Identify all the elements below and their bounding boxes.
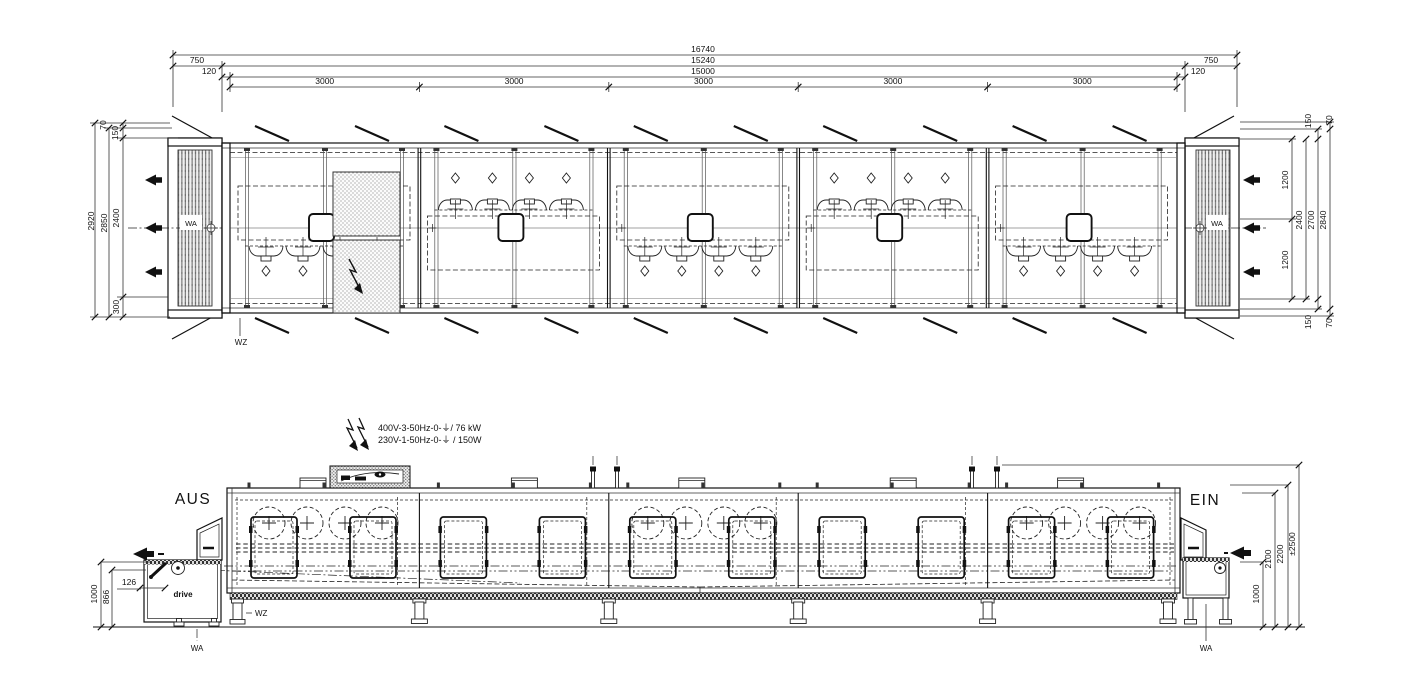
dim-module-5: 3000 — [1073, 76, 1092, 86]
door-hinge — [485, 526, 489, 533]
dim-right-120: 120 — [1191, 66, 1205, 76]
roof-box — [1058, 478, 1084, 488]
exit-label: AUS — [175, 491, 211, 508]
plan-electrical-section — [333, 172, 400, 313]
roof-box — [300, 478, 326, 488]
dim-15240: 15240 — [691, 55, 715, 65]
door-hinge — [1007, 526, 1011, 533]
entry-hood — [1181, 518, 1206, 560]
door-hinge — [537, 526, 541, 533]
door-hinge — [485, 560, 489, 567]
flow-arrow-entry — [1230, 547, 1251, 560]
machine-foot — [980, 599, 996, 624]
machine-foot — [601, 599, 617, 624]
dim-left-300: 300 — [111, 300, 121, 314]
dim-total-length: 16740 — [691, 44, 715, 54]
flow-arrow-exit — [133, 548, 154, 561]
drive-label: drive — [173, 590, 193, 599]
roof-box — [511, 478, 537, 488]
airflow-arrow-left — [145, 175, 162, 186]
end-cap-left: WA — [128, 138, 224, 318]
door-hinge — [348, 526, 352, 533]
dim-left-750: 750 — [190, 55, 204, 65]
machine-foot — [411, 599, 427, 624]
door-hinge — [628, 560, 632, 567]
pump-box — [1067, 214, 1092, 241]
elevation-view: 400V-3-50Hz-0-⏚/ 76 kW 230V-1-50Hz-0-⏚ /… — [89, 418, 1305, 653]
wa-callouts-elevation: WA WA — [191, 604, 1213, 653]
airflow-arrow-left — [145, 267, 162, 278]
door-hinge — [438, 560, 442, 567]
door-hinge — [674, 560, 678, 567]
door-hinge — [1152, 526, 1156, 533]
roof-vent-pipe — [994, 456, 1000, 488]
dim-right-750: 750 — [1204, 55, 1218, 65]
exit-hood — [197, 518, 222, 560]
door-hinge — [296, 526, 300, 533]
entry-label: EIN — [1190, 492, 1220, 509]
wz-elevation-label: WZ — [255, 609, 268, 618]
wa-left-plan-label: WA — [185, 219, 197, 228]
dim-left-150: 150 — [110, 126, 120, 140]
dim-2500: ±2500 — [1287, 532, 1297, 556]
door-hinge — [1106, 560, 1110, 567]
wa-left-elevation-label: WA — [191, 644, 204, 653]
pump-box — [309, 214, 334, 241]
roof-box — [890, 478, 916, 488]
dim-right-2400: 2400 — [1294, 210, 1304, 229]
dim-module-4: 3000 — [883, 76, 902, 86]
dim-left-2400: 2400 — [111, 208, 121, 227]
plan-view: WA WA — [86, 44, 1334, 347]
door-hinge — [249, 526, 253, 533]
door-hinge — [817, 526, 821, 533]
door-hinge — [727, 526, 731, 533]
wz-plan-label: WZ — [235, 338, 248, 347]
pump-box — [498, 214, 523, 241]
dim-left-2920: 2920 — [86, 211, 96, 230]
roof-vent-pipe — [614, 456, 620, 488]
dim-15000: 15000 — [691, 66, 715, 76]
machine-body-elevation — [183, 488, 1180, 600]
wz-callout-plan: WZ — [235, 318, 248, 347]
pump-box — [688, 214, 713, 241]
door-hinge — [864, 526, 868, 533]
dim-right-2700: 2700 — [1306, 210, 1316, 229]
roof-box — [679, 478, 705, 488]
door-hinge — [537, 560, 541, 567]
dim-right-2840: 2840 — [1318, 210, 1328, 229]
door-hinge — [628, 526, 632, 533]
wz-callout-elevation: WZ — [230, 599, 268, 624]
dim-right-70-bottom: 70 — [1324, 318, 1334, 328]
entry-table — [1183, 558, 1232, 624]
machine-foot — [790, 599, 806, 624]
dim-left-70: 70 — [98, 120, 108, 130]
door-hinge — [1106, 526, 1110, 533]
wa-right-elevation-label: WA — [1200, 644, 1213, 653]
dim-2100: 2100 — [1263, 549, 1273, 568]
door-hinge — [1053, 560, 1057, 567]
drive-unit: drive — [144, 560, 221, 626]
door-hinge — [1007, 560, 1011, 567]
dim-right-150-top: 150 — [1303, 114, 1313, 128]
dim-126: 126 — [122, 577, 136, 587]
dim-right-1200-top: 1200 — [1280, 170, 1290, 189]
dim-1000-right: 1000 — [1251, 584, 1261, 603]
dim-left-120: 120 — [202, 66, 216, 76]
dim-module-1: 3000 — [315, 76, 334, 86]
door-hinge — [438, 526, 442, 533]
technical-drawing: WA WA — [0, 0, 1406, 673]
dim-right-1200-bottom: 1200 — [1280, 250, 1290, 269]
door-hinge — [916, 560, 920, 567]
drawing-canvas: WA WA — [0, 0, 1406, 673]
door-hinge — [674, 526, 678, 533]
door-hinge — [817, 560, 821, 567]
dim-module-3: 3000 — [694, 76, 713, 86]
airflow-arrow-left — [145, 223, 162, 234]
machine-foot — [1160, 599, 1176, 624]
door-hinge — [1152, 560, 1156, 567]
airflow-arrow-right — [1243, 267, 1260, 278]
base-frame — [230, 593, 1177, 600]
pump-box — [877, 214, 902, 241]
door-hinge — [864, 560, 868, 567]
door-hinge — [1053, 526, 1057, 533]
airflow-arrow-right — [1243, 175, 1260, 186]
dim-1000-left: 1000 — [89, 584, 99, 603]
power-rating-line2: 230V-1-50Hz-0-⏚ / 150W — [378, 435, 482, 445]
electrical-cabinet — [330, 466, 410, 488]
power-rating-line1: 400V-3-50Hz-0-⏚/ 76 kW — [378, 423, 482, 433]
dim-2200: 2200 — [1275, 544, 1285, 563]
door-hinge — [916, 526, 920, 533]
dim-right-150-bottom: 150 — [1303, 315, 1313, 329]
door-hinge — [296, 560, 300, 567]
wa-right-plan-label: WA — [1211, 219, 1223, 228]
dim-left-2850: 2850 — [99, 213, 109, 232]
dim-866: 866 — [101, 590, 111, 604]
door-hinge — [727, 560, 731, 567]
dim-module-2: 3000 — [505, 76, 524, 86]
power-supply-callout: 400V-3-50Hz-0-⏚/ 76 kW 230V-1-50Hz-0-⏚ /… — [347, 418, 482, 451]
airflow-arrow-right — [1243, 223, 1260, 234]
door-hinge — [249, 560, 253, 567]
door-hinge — [348, 560, 352, 567]
